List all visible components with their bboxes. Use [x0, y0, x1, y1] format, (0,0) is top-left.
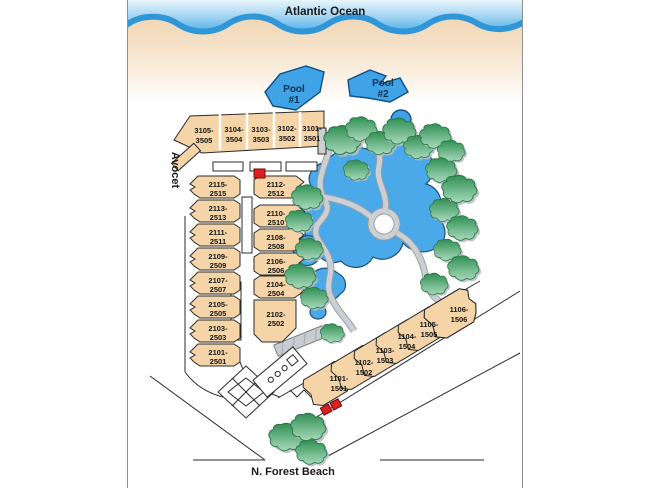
- svg-text:3502: 3502: [279, 134, 296, 143]
- svg-text:2105-: 2105-: [208, 300, 228, 309]
- svg-text:2502: 2502: [268, 319, 285, 328]
- svg-text:#2: #2: [377, 89, 389, 100]
- svg-text:3504: 3504: [226, 135, 244, 144]
- svg-text:2510: 2510: [268, 218, 285, 227]
- svg-text:2515: 2515: [210, 189, 227, 198]
- svg-text:2508: 2508: [268, 242, 285, 251]
- svg-text:2504: 2504: [268, 289, 286, 298]
- svg-text:2115-: 2115-: [209, 180, 228, 189]
- svg-text:2108-: 2108-: [266, 233, 286, 242]
- svg-text:Pool: Pool: [283, 84, 305, 95]
- svg-text:2103-: 2103-: [208, 324, 228, 333]
- site-map: Atlantic Ocean Avocet N. Forest Beach Po…: [128, 0, 522, 488]
- svg-text:1505: 1505: [421, 330, 438, 339]
- svg-text:Pool: Pool: [372, 78, 394, 89]
- svg-text:2513: 2513: [210, 213, 227, 222]
- svg-text:2111-: 2111-: [209, 228, 228, 237]
- svg-text:1101-: 1101-: [330, 374, 349, 383]
- svg-text:1502: 1502: [356, 368, 373, 377]
- svg-text:2507: 2507: [210, 285, 227, 294]
- svg-text:2512: 2512: [268, 189, 285, 198]
- svg-text:1503: 1503: [377, 356, 394, 365]
- street-label-n-forest-beach: N. Forest Beach: [251, 466, 335, 478]
- svg-text:#1: #1: [288, 95, 300, 106]
- svg-text:3103-: 3103-: [251, 125, 271, 134]
- office-marker: [254, 169, 265, 178]
- svg-text:1103-: 1103-: [376, 346, 395, 355]
- svg-text:2107-: 2107-: [208, 276, 228, 285]
- svg-text:2112-: 2112-: [267, 180, 286, 189]
- svg-text:3503: 3503: [253, 135, 270, 144]
- svg-text:2106-: 2106-: [266, 257, 286, 266]
- svg-text:2102-: 2102-: [266, 310, 286, 319]
- svg-text:1102-: 1102-: [355, 358, 374, 367]
- svg-text:1104-: 1104-: [398, 332, 417, 341]
- svg-text:1506: 1506: [451, 315, 468, 324]
- svg-text:2501: 2501: [210, 357, 227, 366]
- svg-text:1105-: 1105-: [420, 320, 439, 329]
- svg-text:2503: 2503: [210, 333, 227, 342]
- svg-text:1106-: 1106-: [450, 305, 469, 314]
- svg-text:2505: 2505: [210, 309, 227, 318]
- svg-text:3501: 3501: [304, 134, 321, 143]
- svg-text:2509: 2509: [210, 261, 227, 270]
- svg-text:2101-: 2101-: [208, 348, 228, 357]
- svg-text:2113-: 2113-: [209, 204, 228, 213]
- resort-site-map-page: Atlantic Ocean Avocet N. Forest Beach Po…: [0, 0, 650, 488]
- svg-text:2109-: 2109-: [208, 252, 228, 261]
- svg-text:2506: 2506: [268, 266, 285, 275]
- svg-text:2511: 2511: [210, 237, 226, 246]
- svg-text:2104-: 2104-: [266, 280, 286, 289]
- svg-text:1501: 1501: [331, 384, 348, 393]
- svg-text:3505: 3505: [196, 136, 213, 145]
- ocean-label: Atlantic Ocean: [285, 6, 366, 18]
- svg-text:3101-: 3101-: [302, 124, 322, 133]
- map-frame: Atlantic Ocean Avocet N. Forest Beach Po…: [127, 0, 523, 488]
- svg-text:3102-: 3102-: [277, 124, 297, 133]
- svg-text:3105-: 3105-: [194, 126, 214, 135]
- svg-text:3104-: 3104-: [224, 125, 244, 134]
- svg-text:2110-: 2110-: [267, 209, 286, 218]
- street-label-avocet: Avocet: [169, 152, 181, 189]
- svg-text:1504: 1504: [399, 342, 417, 351]
